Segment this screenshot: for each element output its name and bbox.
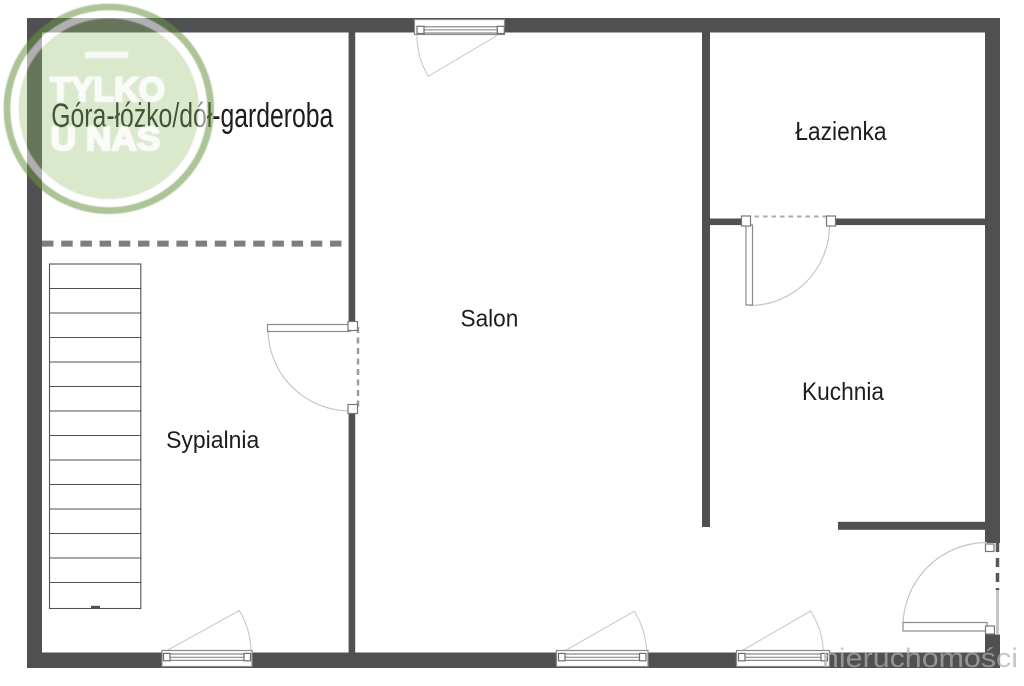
svg-text:Salon: Salon xyxy=(461,306,519,333)
svg-text:TYLKO: TYLKO xyxy=(50,71,165,109)
svg-text:nieruchomości: nieruchomości xyxy=(822,643,1018,673)
svg-text:Łazienka: Łazienka xyxy=(795,118,887,146)
svg-text:Sypialnia: Sypialnia xyxy=(166,427,260,454)
svg-text:Kuchnia: Kuchnia xyxy=(802,378,885,406)
svg-text:U NAS: U NAS xyxy=(51,120,161,157)
